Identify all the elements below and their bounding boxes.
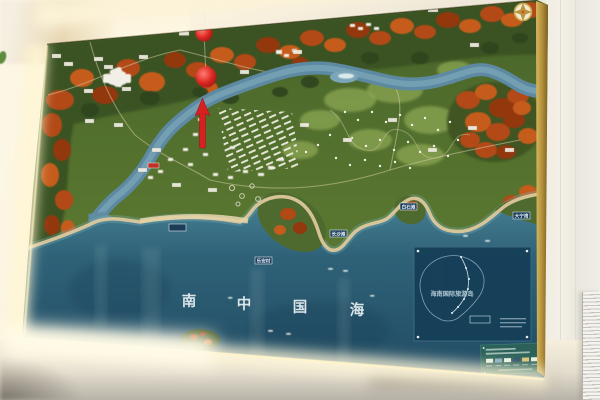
inset-title: 海南国际旅游岛 (430, 290, 473, 298)
bay-label-text: 大宁湾 (515, 213, 529, 220)
bay-label: 白石滩 (400, 203, 417, 211)
bay-label: 大宁湾 (513, 212, 530, 220)
sea-name-char: 南 (182, 292, 197, 310)
sea-name-char: 国 (293, 299, 308, 316)
bay-label-text: 白石滩 (402, 204, 416, 211)
bay-label (169, 224, 186, 231)
sea-name-char: 海 (350, 301, 365, 319)
greenhouse-rows (218, 108, 300, 172)
pompom-marker-1 (196, 25, 213, 42)
bay-label-text: 长沙滩 (332, 231, 346, 238)
board-gold-trim (536, 1, 548, 377)
islet (180, 329, 220, 351)
red-sign (148, 163, 159, 168)
compass-rose-icon (514, 3, 532, 21)
air-vent (582, 292, 600, 400)
inset-map-panel: 海南国际旅游岛 (414, 247, 531, 341)
pompom-marker-2 (196, 67, 217, 88)
bay-label: 乐安村 (255, 257, 272, 265)
bay-label: 长沙滩 (330, 230, 347, 238)
sea-name-char: 中 (237, 295, 252, 313)
relief-map-board: 白石滩 大宁湾 长沙滩 乐安村 南 中 国 海 (0, 0, 600, 400)
legend-panel (480, 343, 543, 375)
bay-label-text: 乐安村 (257, 258, 271, 265)
river-highlight (338, 73, 354, 78)
